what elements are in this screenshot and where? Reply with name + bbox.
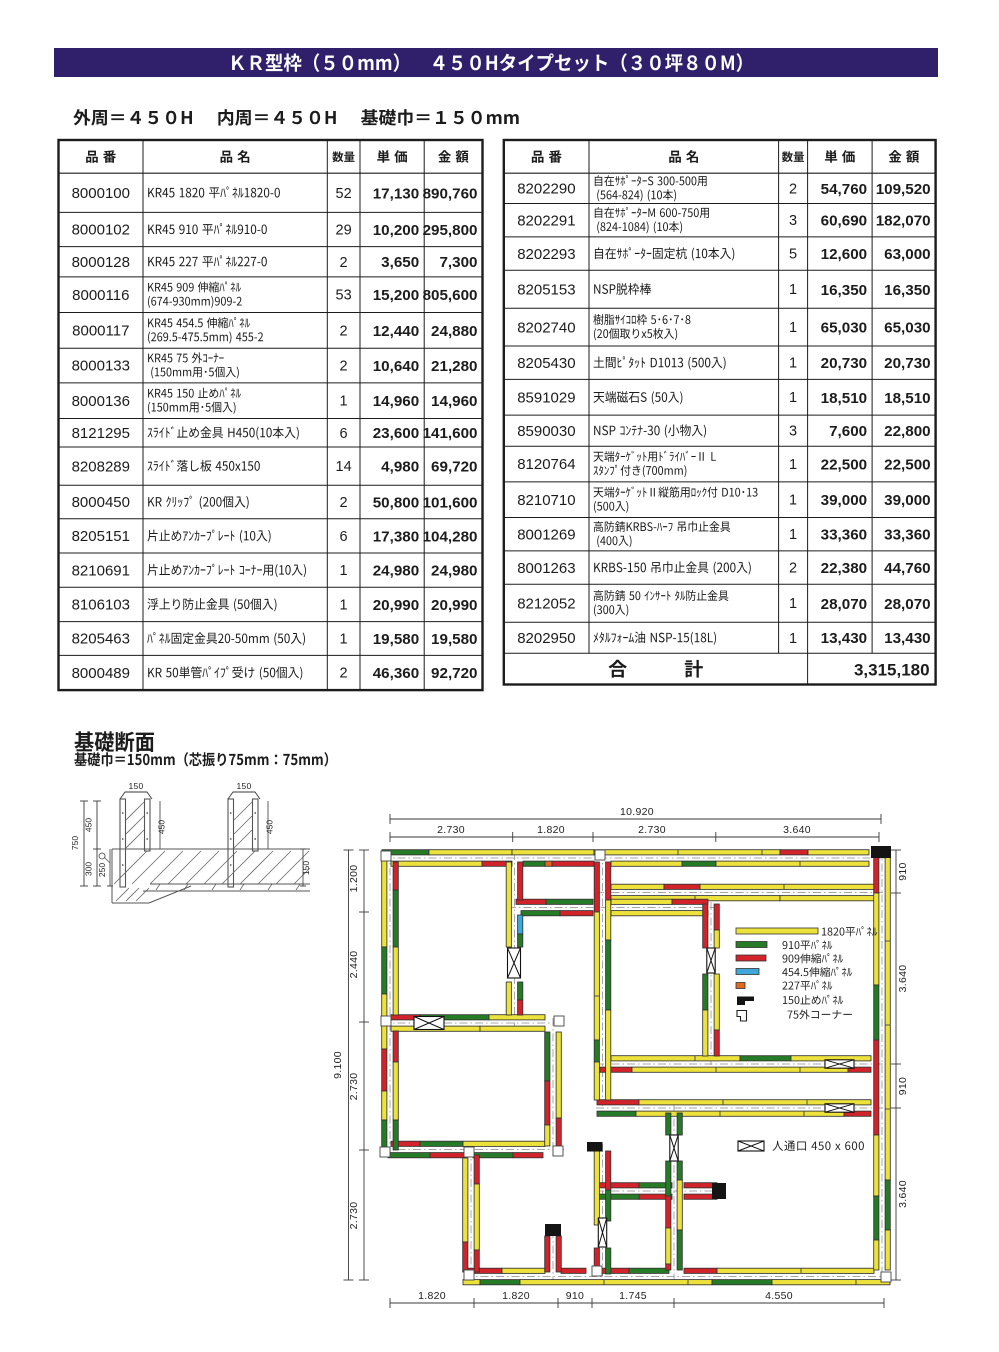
svg-text:1: 1 (789, 320, 797, 336)
svg-text:23,600: 23,600 (373, 425, 419, 442)
svg-text:33,360: 33,360 (884, 527, 930, 544)
svg-text:8001269: 8001269 (517, 526, 575, 543)
svg-text:2.730: 2.730 (348, 1073, 360, 1101)
svg-text:2.440: 2.440 (348, 951, 360, 979)
svg-text:8000133: 8000133 (72, 358, 130, 375)
svg-text:10,200: 10,200 (373, 222, 419, 239)
svg-text:4.550: 4.550 (765, 1290, 793, 1302)
svg-text:16,350: 16,350 (821, 282, 867, 299)
svg-text:46,360: 46,360 (373, 665, 419, 682)
svg-text:150: 150 (236, 781, 251, 791)
svg-text:295,800: 295,800 (423, 222, 478, 239)
svg-text:8106103: 8106103 (72, 597, 130, 614)
svg-text:7,600: 7,600 (829, 423, 867, 440)
svg-text:17,130: 17,130 (373, 185, 419, 202)
svg-text:19,580: 19,580 (431, 631, 477, 648)
svg-text:910: 910 (566, 1290, 584, 1302)
svg-text:2: 2 (340, 495, 348, 511)
svg-text:150: 150 (128, 781, 143, 791)
svg-text:3,650: 3,650 (381, 254, 419, 271)
svg-text:890,760: 890,760 (423, 185, 478, 202)
svg-text:1.820: 1.820 (502, 1290, 530, 1302)
svg-text:6: 6 (340, 426, 348, 442)
svg-text:54,760: 54,760 (821, 181, 867, 198)
svg-text:8205151: 8205151 (72, 528, 130, 545)
svg-text:20,990: 20,990 (431, 597, 477, 614)
svg-text:910: 910 (897, 1077, 909, 1095)
svg-text:1: 1 (789, 631, 797, 647)
svg-text:8205430: 8205430 (517, 355, 575, 372)
svg-text:1: 1 (789, 527, 797, 543)
svg-text:29: 29 (336, 223, 352, 239)
svg-text:910: 910 (897, 862, 909, 880)
svg-text:24,880: 24,880 (431, 323, 477, 340)
svg-text:53: 53 (336, 288, 352, 304)
svg-text:2: 2 (340, 359, 348, 375)
svg-text:22,500: 22,500 (821, 457, 867, 474)
svg-text:109,520: 109,520 (876, 181, 931, 198)
svg-text:50,800: 50,800 (373, 495, 419, 512)
svg-text:3: 3 (789, 213, 797, 229)
svg-text:2.730: 2.730 (348, 1202, 360, 1230)
svg-text:8202293: 8202293 (517, 246, 575, 263)
svg-text:28,070: 28,070 (821, 596, 867, 613)
svg-text:150: 150 (301, 861, 311, 875)
svg-text:8121295: 8121295 (72, 425, 130, 442)
svg-text:182,070: 182,070 (876, 213, 931, 230)
svg-text:39,000: 39,000 (884, 492, 930, 509)
svg-text:1: 1 (789, 356, 797, 372)
svg-text:8590030: 8590030 (517, 423, 575, 440)
svg-text:60,690: 60,690 (821, 213, 867, 230)
svg-text:6: 6 (340, 529, 348, 545)
svg-text:65,030: 65,030 (884, 320, 930, 337)
svg-text:1.820: 1.820 (418, 1290, 446, 1302)
svg-text:1.745: 1.745 (619, 1290, 647, 1302)
svg-text:8591029: 8591029 (517, 389, 575, 406)
svg-text:2: 2 (789, 561, 797, 577)
svg-text:8000117: 8000117 (72, 323, 129, 340)
svg-text:65,030: 65,030 (821, 320, 867, 337)
svg-text:2.730: 2.730 (437, 824, 465, 836)
svg-text:3.640: 3.640 (783, 824, 811, 836)
svg-text:12,440: 12,440 (373, 323, 419, 340)
svg-text:2: 2 (340, 666, 348, 682)
svg-text:450: 450 (84, 818, 94, 832)
svg-text:450: 450 (157, 820, 167, 834)
svg-text:3.640: 3.640 (897, 965, 909, 993)
svg-text:8205463: 8205463 (72, 631, 130, 648)
svg-text:8210691: 8210691 (72, 562, 130, 579)
svg-text:20,730: 20,730 (884, 355, 930, 372)
svg-text:8000102: 8000102 (72, 222, 130, 239)
svg-text:1: 1 (340, 394, 348, 410)
svg-text:39,000: 39,000 (821, 492, 867, 509)
svg-text:300: 300 (84, 862, 94, 876)
svg-text:8120764: 8120764 (517, 456, 575, 473)
svg-text:8208289: 8208289 (72, 458, 130, 475)
svg-text:101,600: 101,600 (423, 495, 478, 512)
svg-text:44,760: 44,760 (884, 560, 930, 577)
svg-text:7,300: 7,300 (439, 254, 477, 271)
svg-text:22,500: 22,500 (884, 457, 930, 474)
svg-text:1: 1 (340, 597, 348, 613)
svg-text:2: 2 (789, 181, 797, 197)
svg-text:63,000: 63,000 (884, 246, 930, 263)
svg-text:450: 450 (265, 820, 275, 834)
svg-text:8000116: 8000116 (72, 287, 129, 304)
svg-text:8212052: 8212052 (517, 596, 575, 613)
svg-text:8202291: 8202291 (517, 212, 575, 229)
svg-text:13,430: 13,430 (884, 630, 930, 647)
svg-text:8210710: 8210710 (517, 492, 575, 509)
svg-text:8202290: 8202290 (517, 181, 575, 198)
svg-text:16,350: 16,350 (884, 282, 930, 299)
svg-text:1.200: 1.200 (348, 865, 360, 893)
svg-text:8000100: 8000100 (72, 185, 130, 202)
svg-text:24,980: 24,980 (431, 563, 477, 580)
svg-text:9.100: 9.100 (332, 1051, 344, 1079)
svg-text:8202950: 8202950 (517, 630, 575, 647)
svg-text:2: 2 (340, 255, 348, 271)
svg-text:8000450: 8000450 (72, 494, 130, 511)
svg-text:19,580: 19,580 (373, 631, 419, 648)
svg-text:21,280: 21,280 (431, 358, 477, 375)
svg-text:1: 1 (789, 457, 797, 473)
svg-text:4,980: 4,980 (381, 459, 419, 476)
svg-text:1: 1 (340, 563, 348, 579)
svg-text:3,315,180: 3,315,180 (854, 660, 930, 679)
svg-text:10.920: 10.920 (620, 806, 654, 818)
svg-text:1: 1 (789, 390, 797, 406)
svg-text:2: 2 (340, 323, 348, 339)
svg-text:8202740: 8202740 (517, 319, 575, 336)
svg-text:8001263: 8001263 (517, 560, 575, 577)
svg-text:8000128: 8000128 (72, 254, 130, 271)
svg-text:22,380: 22,380 (821, 560, 867, 577)
svg-text:3.640: 3.640 (897, 1180, 909, 1208)
svg-text:1.820: 1.820 (537, 824, 565, 836)
svg-text:10,640: 10,640 (373, 358, 419, 375)
svg-text:24,980: 24,980 (373, 563, 419, 580)
svg-text:104,280: 104,280 (423, 528, 478, 545)
svg-text:3: 3 (789, 424, 797, 440)
svg-text:1: 1 (789, 282, 797, 298)
svg-text:52: 52 (336, 186, 352, 202)
svg-text:15,200: 15,200 (373, 287, 419, 304)
svg-text:28,070: 28,070 (884, 596, 930, 613)
svg-text:92,720: 92,720 (431, 665, 477, 682)
svg-text:14: 14 (336, 459, 352, 475)
svg-text:12,600: 12,600 (821, 246, 867, 263)
svg-text:750: 750 (70, 836, 80, 850)
svg-text:69,720: 69,720 (431, 459, 477, 476)
svg-text:1: 1 (340, 632, 348, 648)
svg-text:14,960: 14,960 (431, 393, 477, 410)
svg-text:18,510: 18,510 (821, 390, 867, 407)
svg-text:17,380: 17,380 (373, 528, 419, 545)
svg-text:1: 1 (789, 493, 797, 509)
svg-text:20,990: 20,990 (373, 597, 419, 614)
svg-text:1: 1 (789, 596, 797, 612)
svg-text:805,600: 805,600 (423, 287, 478, 304)
svg-text:8000136: 8000136 (72, 393, 130, 410)
svg-text:13,430: 13,430 (821, 630, 867, 647)
svg-text:8000489: 8000489 (72, 665, 130, 682)
svg-text:18,510: 18,510 (884, 390, 930, 407)
svg-text:22,800: 22,800 (884, 423, 930, 440)
svg-text:20,730: 20,730 (821, 355, 867, 372)
svg-text:8205153: 8205153 (517, 281, 575, 298)
svg-text:5: 5 (789, 247, 797, 263)
svg-text:2.730: 2.730 (638, 824, 666, 836)
svg-text:141,600: 141,600 (423, 425, 478, 442)
svg-text:14,960: 14,960 (373, 393, 419, 410)
svg-text:250: 250 (97, 863, 107, 877)
svg-text:33,360: 33,360 (821, 527, 867, 544)
